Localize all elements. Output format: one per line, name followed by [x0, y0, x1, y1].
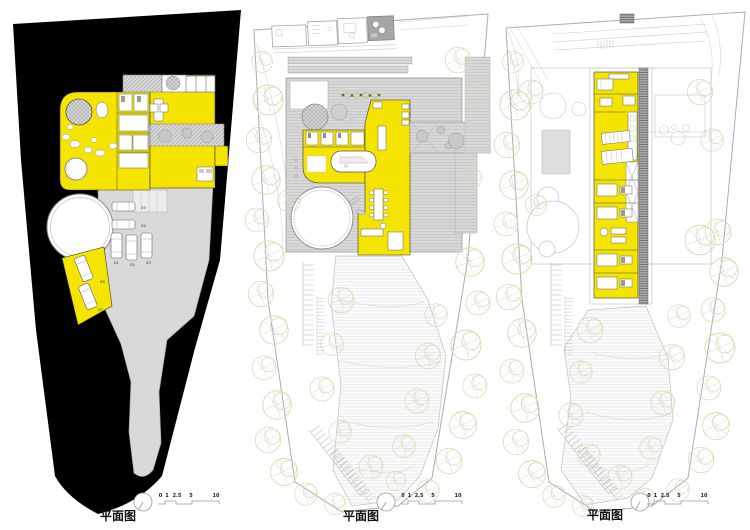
- scale-bar: 0 1 2.5 5 10: [158, 493, 220, 504]
- panel-upper-level-plan: 0 1 2.5 5 10 平面图: [494, 12, 745, 522]
- tree-icon: [463, 374, 487, 398]
- scale-tick: 0: [647, 493, 651, 499]
- parking-spot-label: 03: [146, 260, 151, 265]
- service-rooms: [186, 76, 215, 92]
- pool-below: [542, 130, 570, 174]
- tree-icon: [494, 212, 518, 236]
- spa-circle: [65, 158, 87, 180]
- parking-spot-label: 05: [141, 205, 146, 210]
- tree-icon: [252, 356, 276, 380]
- scale-tick: 2.5: [173, 493, 182, 499]
- tree-icon: [503, 429, 529, 455]
- tree-icon: [450, 412, 477, 439]
- scale-tick: 5: [431, 493, 435, 499]
- scale-tick: 1: [165, 493, 169, 499]
- scale-tick: 1: [408, 493, 412, 499]
- car-icon: [126, 235, 137, 260]
- courtyard-tree: [302, 104, 328, 130]
- tree-well: [66, 99, 92, 125]
- tree-icon: [496, 284, 522, 310]
- scale-tick: 0: [401, 493, 405, 499]
- north-indicator-icon: [377, 493, 395, 511]
- car-icon: [112, 220, 135, 229]
- scale-tick: 2.5: [415, 493, 424, 499]
- tree-icon: [519, 461, 546, 488]
- scale-tick: 5: [677, 493, 681, 499]
- entry-deck-hatch: [123, 75, 162, 92]
- parking-spot-label: 06: [100, 279, 105, 284]
- parking-spot-label: 01: [114, 260, 119, 265]
- scale-tick: 1: [654, 493, 658, 499]
- architectural-plan-sheet: 05 04 01 02 03 06 07 0 1 2.5 5 10 平面图: [0, 0, 750, 530]
- tree-icon: [451, 330, 481, 360]
- tree-icon: [705, 333, 735, 363]
- tree-icon: [500, 359, 524, 383]
- tree-icon: [255, 427, 281, 453]
- scale-bar: 0 1 2.5 5 10: [401, 493, 462, 504]
- tree-icon: [703, 413, 730, 440]
- car-icon: [112, 202, 135, 211]
- scale-tick: 5: [189, 493, 193, 499]
- panel-entry-level-plan: 05 04 01 02 03 06 07 0 1 2.5 5 10 平面图: [13, 10, 241, 523]
- plan-title: 平面图: [100, 509, 136, 523]
- scale-tick: 0: [159, 493, 163, 499]
- plan-title: 平面图: [343, 509, 379, 523]
- parking-spot-label: 07: [98, 307, 103, 312]
- tree-icon: [688, 447, 714, 473]
- car-icon: [141, 233, 152, 258]
- panel-main-level-plan: 0 1 2.5 5 10 平面图: [245, 14, 490, 523]
- north-indicator-icon: [134, 493, 152, 511]
- tree-icon: [466, 291, 490, 315]
- tree-icon: [511, 394, 540, 423]
- tree-icon: [436, 448, 462, 474]
- scale-tick: 10: [701, 493, 708, 499]
- walkway-band: [639, 68, 648, 304]
- plans-canvas: 05 04 01 02 03 06 07 0 1 2.5 5 10 平面图: [0, 0, 750, 530]
- plan-title: 平面图: [587, 508, 623, 522]
- garage-entry: [133, 190, 167, 212]
- scale-tick: 10: [455, 493, 462, 499]
- parking-spot-label: 02: [130, 262, 135, 267]
- parking-spot-label: 04: [141, 223, 146, 228]
- dining-table: [374, 189, 383, 220]
- pool: [291, 187, 353, 249]
- scale-tick: 2.5: [661, 493, 670, 499]
- car-icon: [111, 233, 122, 258]
- court-tree: [166, 76, 180, 90]
- scale-tick: 10: [213, 493, 220, 499]
- tree-icon: [543, 485, 566, 508]
